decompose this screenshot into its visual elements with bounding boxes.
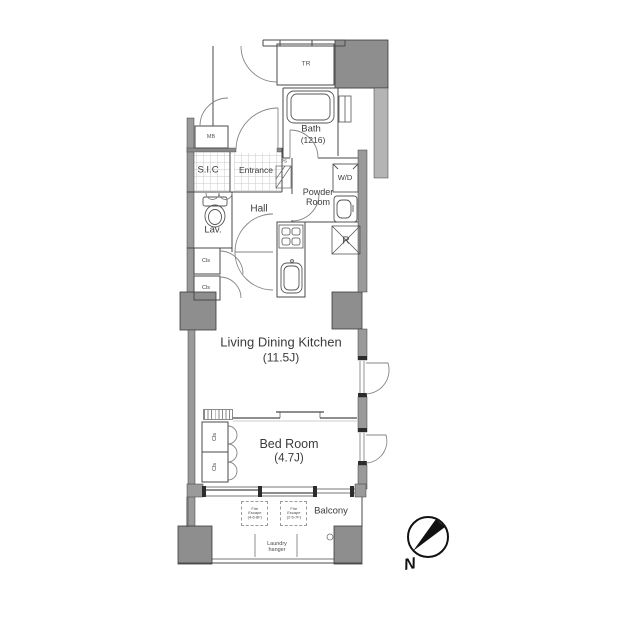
fe1-line3: (4-6-8F) (247, 516, 261, 520)
closet-label-3: Cls (212, 433, 218, 441)
ldk-window-arc (366, 363, 389, 394)
fe2-line3: (2-5-7F) (286, 516, 300, 520)
bedroom-closet-fold-3 (228, 462, 237, 480)
room-label-ldk: Living Dining Kitchen (220, 336, 341, 351)
drain-icon (327, 534, 333, 540)
room-label-tr: TR (301, 60, 310, 68)
bedroom-size-label: (4.7J) (274, 453, 303, 466)
floorplan-drawing (0, 0, 640, 639)
fire-escape-note-2: Fire Escape (2-5-7F) (280, 501, 307, 526)
room-label-sic: S.I.C (197, 166, 218, 177)
tr-door-arc (241, 46, 277, 82)
room-label-entrance: Entrance (239, 166, 273, 176)
toilet-icon (203, 197, 227, 227)
closet2-door-arc (220, 277, 241, 298)
compass-north-label: N (403, 555, 418, 575)
laundry-hanger-note: Laundry hanger (267, 541, 287, 553)
bedroom-closet (202, 422, 228, 482)
floorplan-page: TR MB S.I.C Entrance PS Bath (1216) W/D … (0, 0, 640, 639)
hall-door-arc-down (235, 252, 273, 290)
bedroom-closet-fold-2 (228, 444, 237, 462)
lav-door-fold-1 (206, 193, 219, 200)
closet-label-4: Cls (212, 463, 218, 471)
bath-window-icon (339, 96, 351, 122)
washer-dryer-label: W/D (338, 174, 353, 182)
pipe-space-label: PS (281, 160, 287, 165)
laundry-line1: Laundry (267, 541, 287, 547)
mb-door-arc (200, 98, 228, 126)
meter-box-label: MB (207, 134, 215, 140)
sink-icon (281, 260, 302, 293)
closet-label-1: Cls (202, 258, 210, 264)
room-label-powder: Powder Room (303, 187, 334, 207)
room-label-bedroom: Bed Room (259, 437, 318, 451)
bathtub-icon (287, 91, 334, 123)
bedroom-window-arc (366, 435, 387, 463)
fire-escape-note-1: Fire Escape (4-6-8F) (241, 501, 268, 526)
bath-size-label: (1216) (301, 136, 326, 146)
powder-line1: Powder (303, 187, 334, 197)
room-label-balcony: Balcony (314, 507, 348, 518)
door-arcs (200, 46, 319, 480)
compass-icon (408, 517, 448, 557)
closet-label-2: Cls (202, 285, 210, 291)
compass-needle (413, 519, 445, 551)
lav-door-fold-2 (219, 193, 232, 200)
washbasin-icon (334, 196, 357, 222)
stove-icon (279, 225, 303, 248)
hall-door-arc-up (235, 214, 273, 252)
room-label-hall: Hall (250, 203, 267, 214)
sliding-partition (233, 412, 357, 421)
front-door-arc (236, 108, 278, 150)
laundry-line2: hanger (267, 547, 287, 553)
bedroom-closet-fold-1 (228, 426, 237, 444)
powder-line2: Room (303, 197, 334, 207)
room-label-bath: Bath (301, 125, 321, 136)
room-label-lav: Lav. (204, 226, 221, 237)
ldk-size-label: (11.5J) (263, 351, 299, 364)
fridge-label: R (342, 235, 349, 246)
balcony-window (202, 486, 355, 497)
pipe-space-box (276, 166, 291, 188)
